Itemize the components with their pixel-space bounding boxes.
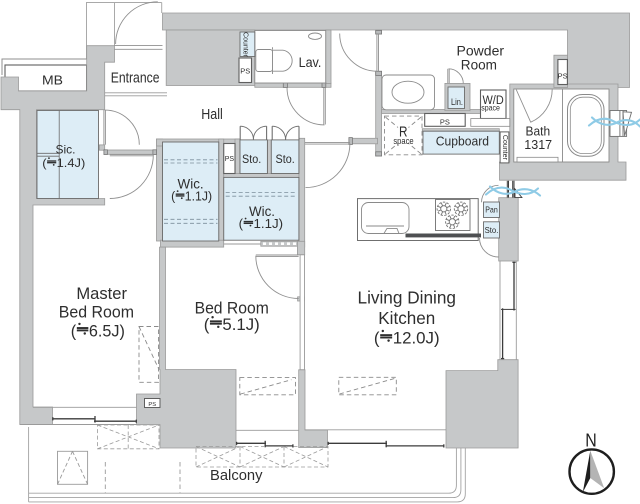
svg-text:Sto.: Sto. [242,152,261,166]
svg-text:5.1J): 5.1J) [222,315,259,334]
svg-text:Master: Master [76,285,127,303]
svg-text:PS: PS [558,71,568,80]
svg-text:1.1J): 1.1J) [185,189,212,203]
svg-text:(: ( [42,156,46,170]
svg-text:Counter: Counter [501,135,508,161]
svg-text:Bed Room: Bed Room [59,303,134,321]
svg-text:Entrance: Entrance [111,71,160,87]
svg-text:space: space [393,136,413,146]
svg-text:PS: PS [225,156,235,163]
svg-text:Cupboard: Cupboard [436,135,489,149]
svg-text:PS: PS [440,118,450,127]
svg-text:Balcony: Balcony [210,467,263,484]
svg-text:Sic.: Sic. [55,143,75,157]
svg-text:N: N [585,430,597,451]
svg-text:6.5J): 6.5J) [89,322,125,341]
svg-text:(: ( [374,329,380,348]
svg-text:(: ( [71,322,77,341]
svg-text:Room: Room [461,56,497,72]
svg-text:1.4J): 1.4J) [57,156,86,170]
svg-text:space: space [481,103,500,113]
svg-text:Living Dining: Living Dining [358,287,457,307]
svg-text:Sto.: Sto. [276,152,295,166]
svg-text:PS: PS [148,402,156,408]
svg-text:MB: MB [42,72,63,87]
svg-text:Kitchen: Kitchen [378,308,435,328]
svg-text:Pan: Pan [485,204,498,214]
svg-text:Hall: Hall [201,107,223,123]
svg-text:1.1J): 1.1J) [254,217,284,231]
svg-text:PS: PS [240,67,250,76]
svg-text:Lav.: Lav. [299,55,322,70]
svg-text:Counter: Counter [242,32,249,58]
svg-text:1317: 1317 [524,137,552,152]
svg-text:12.0J): 12.0J) [393,329,440,348]
svg-text:(: ( [204,315,210,334]
svg-text:Lin.: Lin. [451,97,463,107]
svg-text:Sto.: Sto. [485,225,499,235]
